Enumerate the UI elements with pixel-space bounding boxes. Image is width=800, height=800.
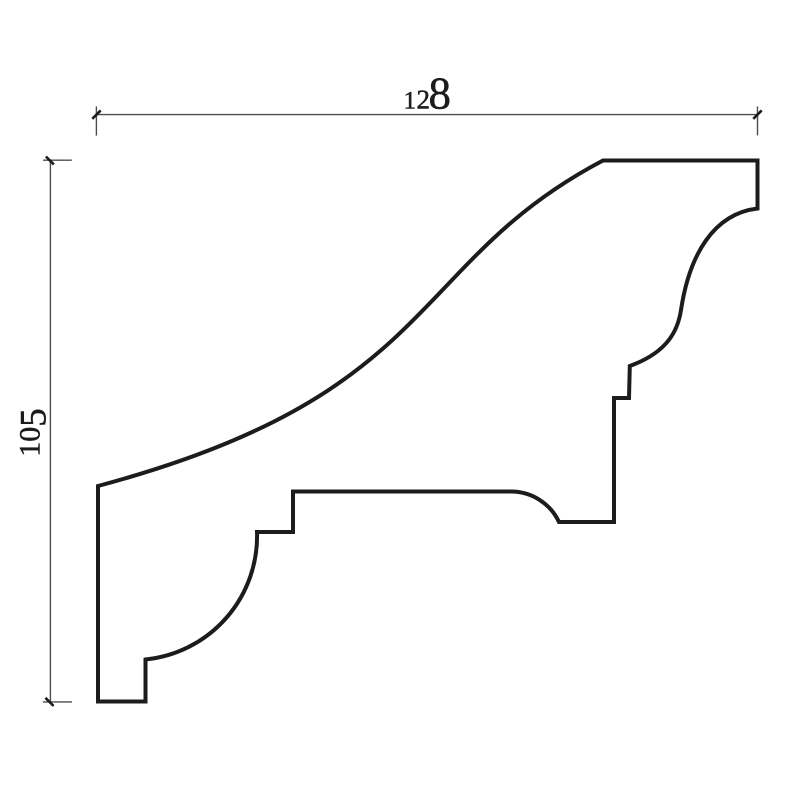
svg-text:105: 105 [14,408,55,457]
svg-text:128: 128 [404,69,452,119]
